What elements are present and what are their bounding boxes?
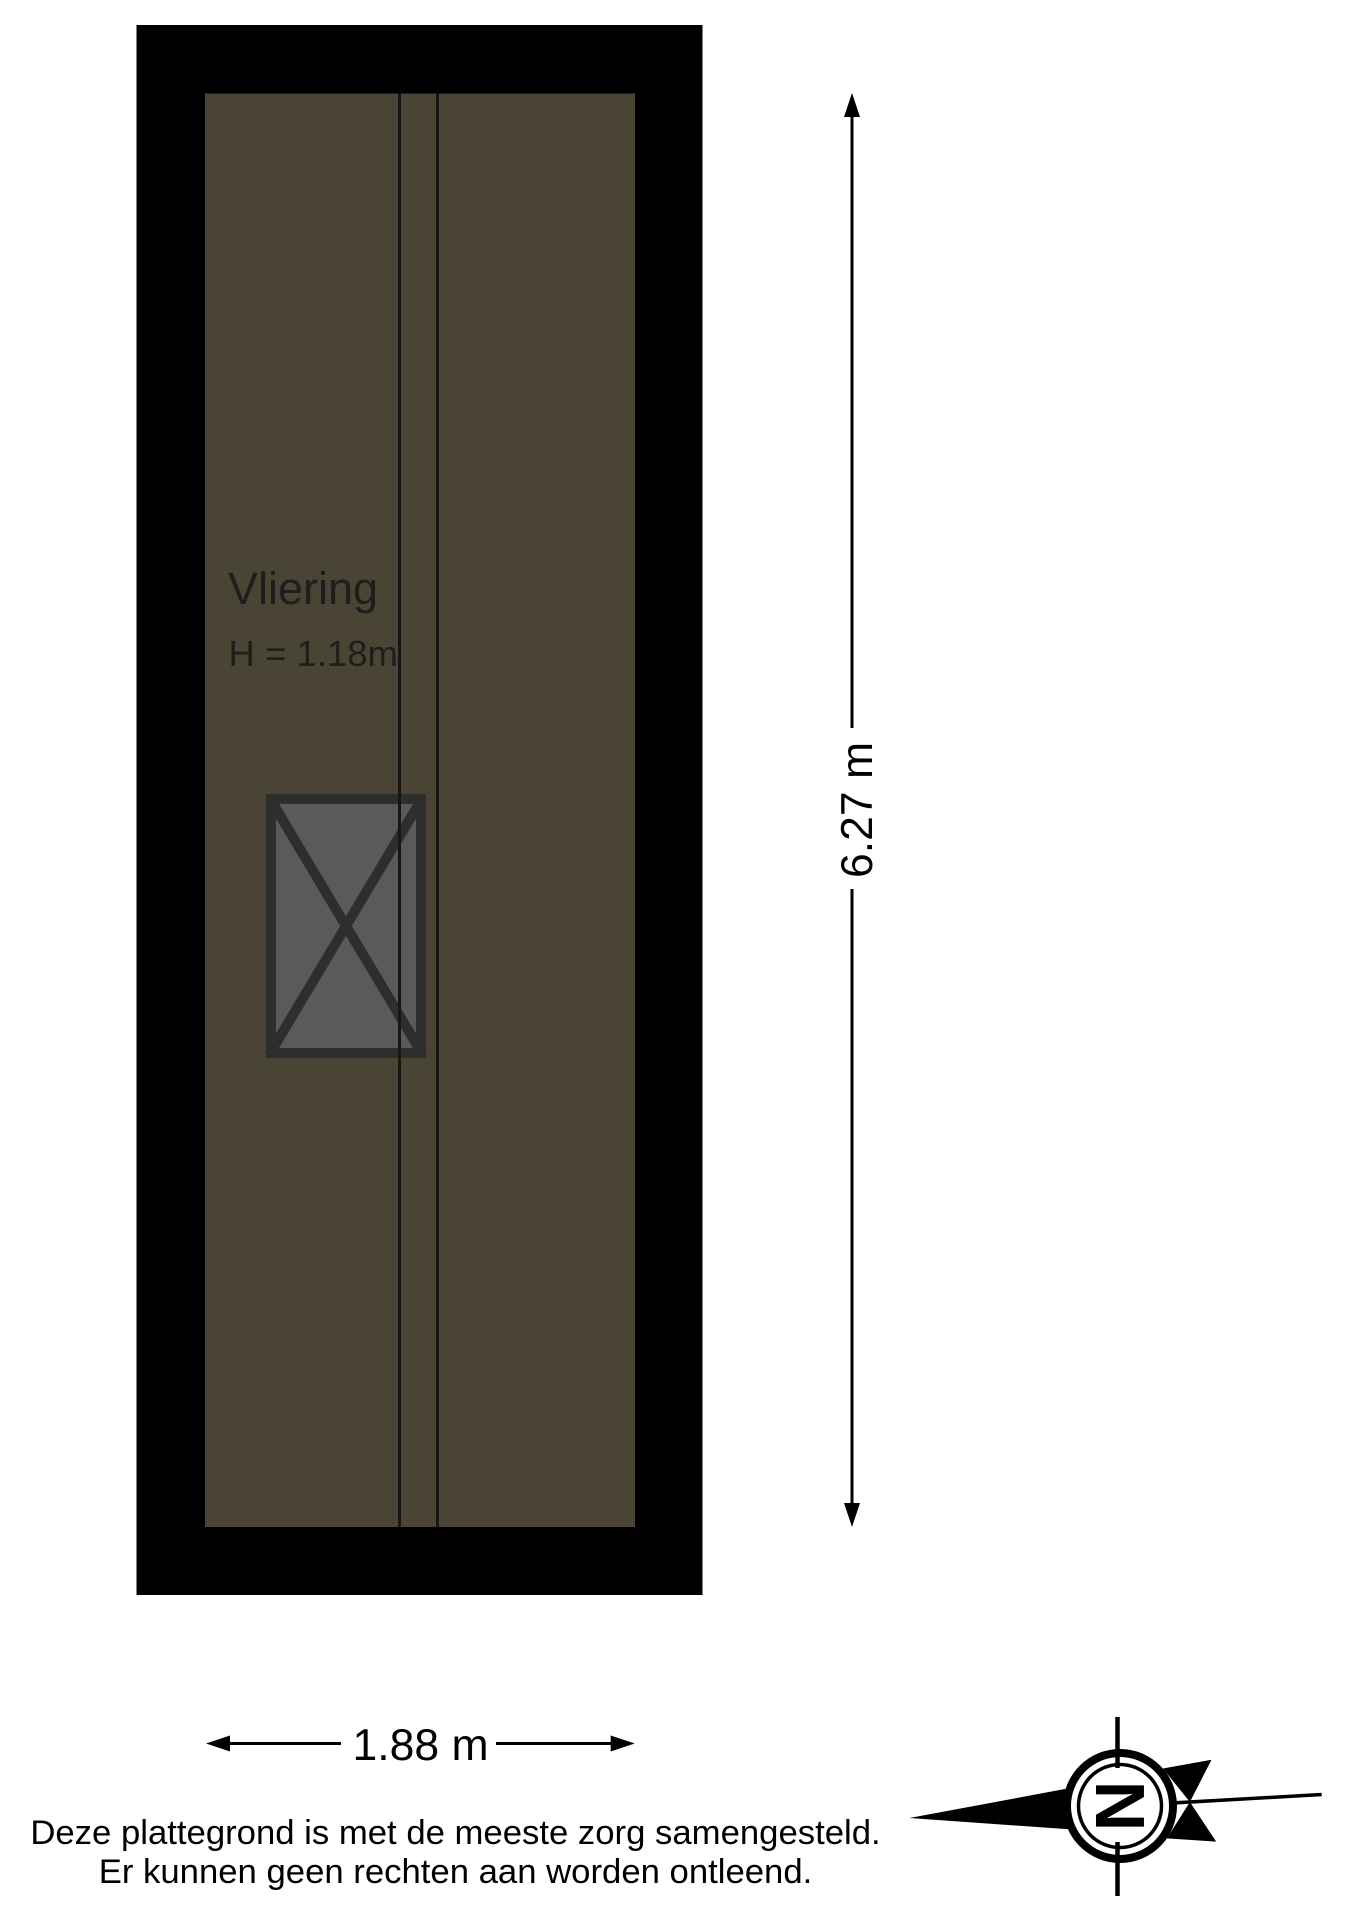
svg-text:1.88 m: 1.88 m [352,1721,488,1770]
svg-text:N: N [1081,1781,1159,1832]
svg-text:Deze plattegrond is met de mee: Deze plattegrond is met de meeste zorg s… [30,1814,880,1852]
svg-text:6.27 m: 6.27 m [833,742,882,878]
svg-text:H = 1.18m: H = 1.18m [229,633,398,674]
svg-text:Vliering: Vliering [228,563,378,614]
svg-text:Er kunnen geen rechten aan wor: Er kunnen geen rechten aan worden ontlee… [99,1853,813,1891]
